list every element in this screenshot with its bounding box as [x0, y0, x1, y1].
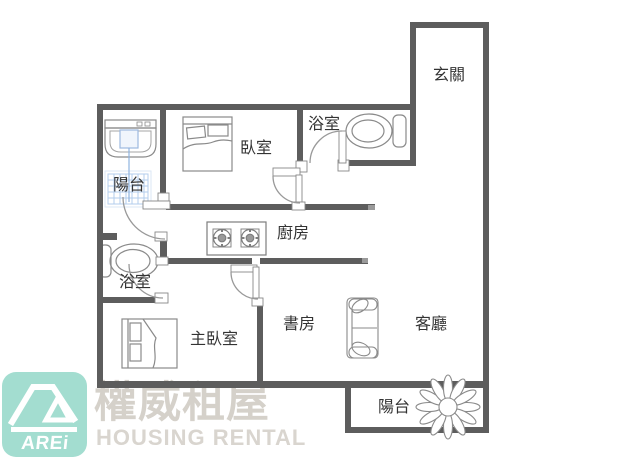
room-label-bedroom: 臥室	[240, 141, 272, 157]
toilet-top-icon	[346, 114, 406, 148]
room-label-balcony-laundry: 陽台	[113, 178, 145, 194]
room-label-balcony-rear: 陽台	[378, 400, 410, 416]
arei-logo: AREi	[2, 372, 87, 457]
room-label-bathroom-lower: 浴室	[119, 275, 151, 291]
bedroom-door-leaf	[296, 175, 302, 203]
room-label-living-room: 客廳	[415, 317, 447, 333]
room-label-bathroom-top: 浴室	[308, 117, 340, 133]
floor-plan-drawing	[0, 0, 638, 460]
room-label-study: 書房	[283, 317, 315, 333]
door-swings	[123, 131, 349, 306]
sofa-icon	[347, 296, 378, 358]
toilet-lower-icon	[99, 244, 158, 278]
house-icon	[2, 372, 87, 432]
balcony-door-leaf	[143, 201, 170, 209]
room-label-entry: 玄關	[433, 68, 465, 84]
bed-icon	[183, 117, 232, 171]
door-jamb	[155, 232, 167, 241]
master-bed-icon	[122, 319, 177, 368]
room-label-master-bedroom: 主臥室	[190, 332, 238, 348]
logo-text: AREi	[20, 434, 69, 453]
door-jamb	[156, 257, 168, 265]
bathroom-top-door-arc	[310, 131, 342, 163]
room-label-kitchen: 廚房	[277, 226, 309, 242]
logo-divider	[11, 427, 77, 432]
door-jamb	[158, 193, 169, 201]
stove-icon	[207, 222, 266, 255]
bathroom-top-door-leaf	[339, 131, 346, 163]
floor-plan-canvas: 權威租屋 HOUSING RENTAL	[0, 0, 638, 460]
